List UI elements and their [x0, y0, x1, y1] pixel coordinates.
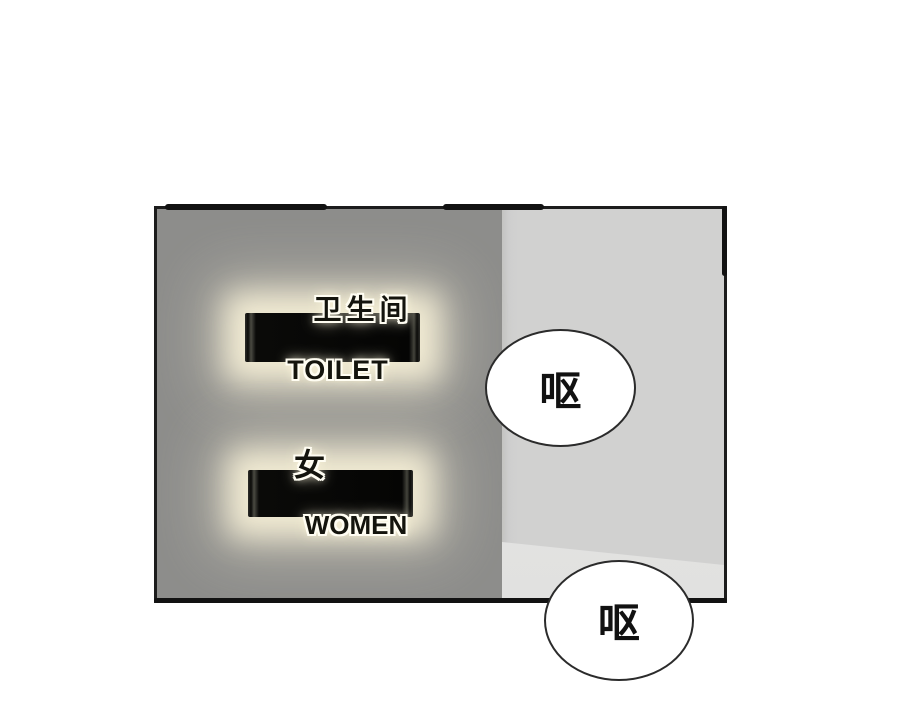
panel-border-stroke	[443, 204, 544, 210]
wall-left-dark	[157, 209, 502, 600]
panel-border-stroke	[165, 204, 327, 210]
toilet-sign-english-label: TOILET	[287, 355, 389, 386]
toilet-sign-chinese-label: 卫生间	[313, 288, 412, 328]
speech-bubble: 呕	[485, 329, 636, 447]
women-sign-english-label: WOMEN	[305, 510, 408, 541]
speech-bubble-text: 呕	[598, 590, 640, 651]
comic-page: { "panel": { "description": "Comic panel…	[0, 0, 900, 703]
speech-bubble-text: 呕	[539, 358, 581, 419]
speech-bubble: 呕	[544, 560, 694, 681]
women-sign-chinese-label: 女	[294, 440, 330, 485]
comic-panel: 卫生间 TOILET 女 WOMEN	[154, 206, 727, 603]
panel-border-stroke	[722, 206, 727, 276]
